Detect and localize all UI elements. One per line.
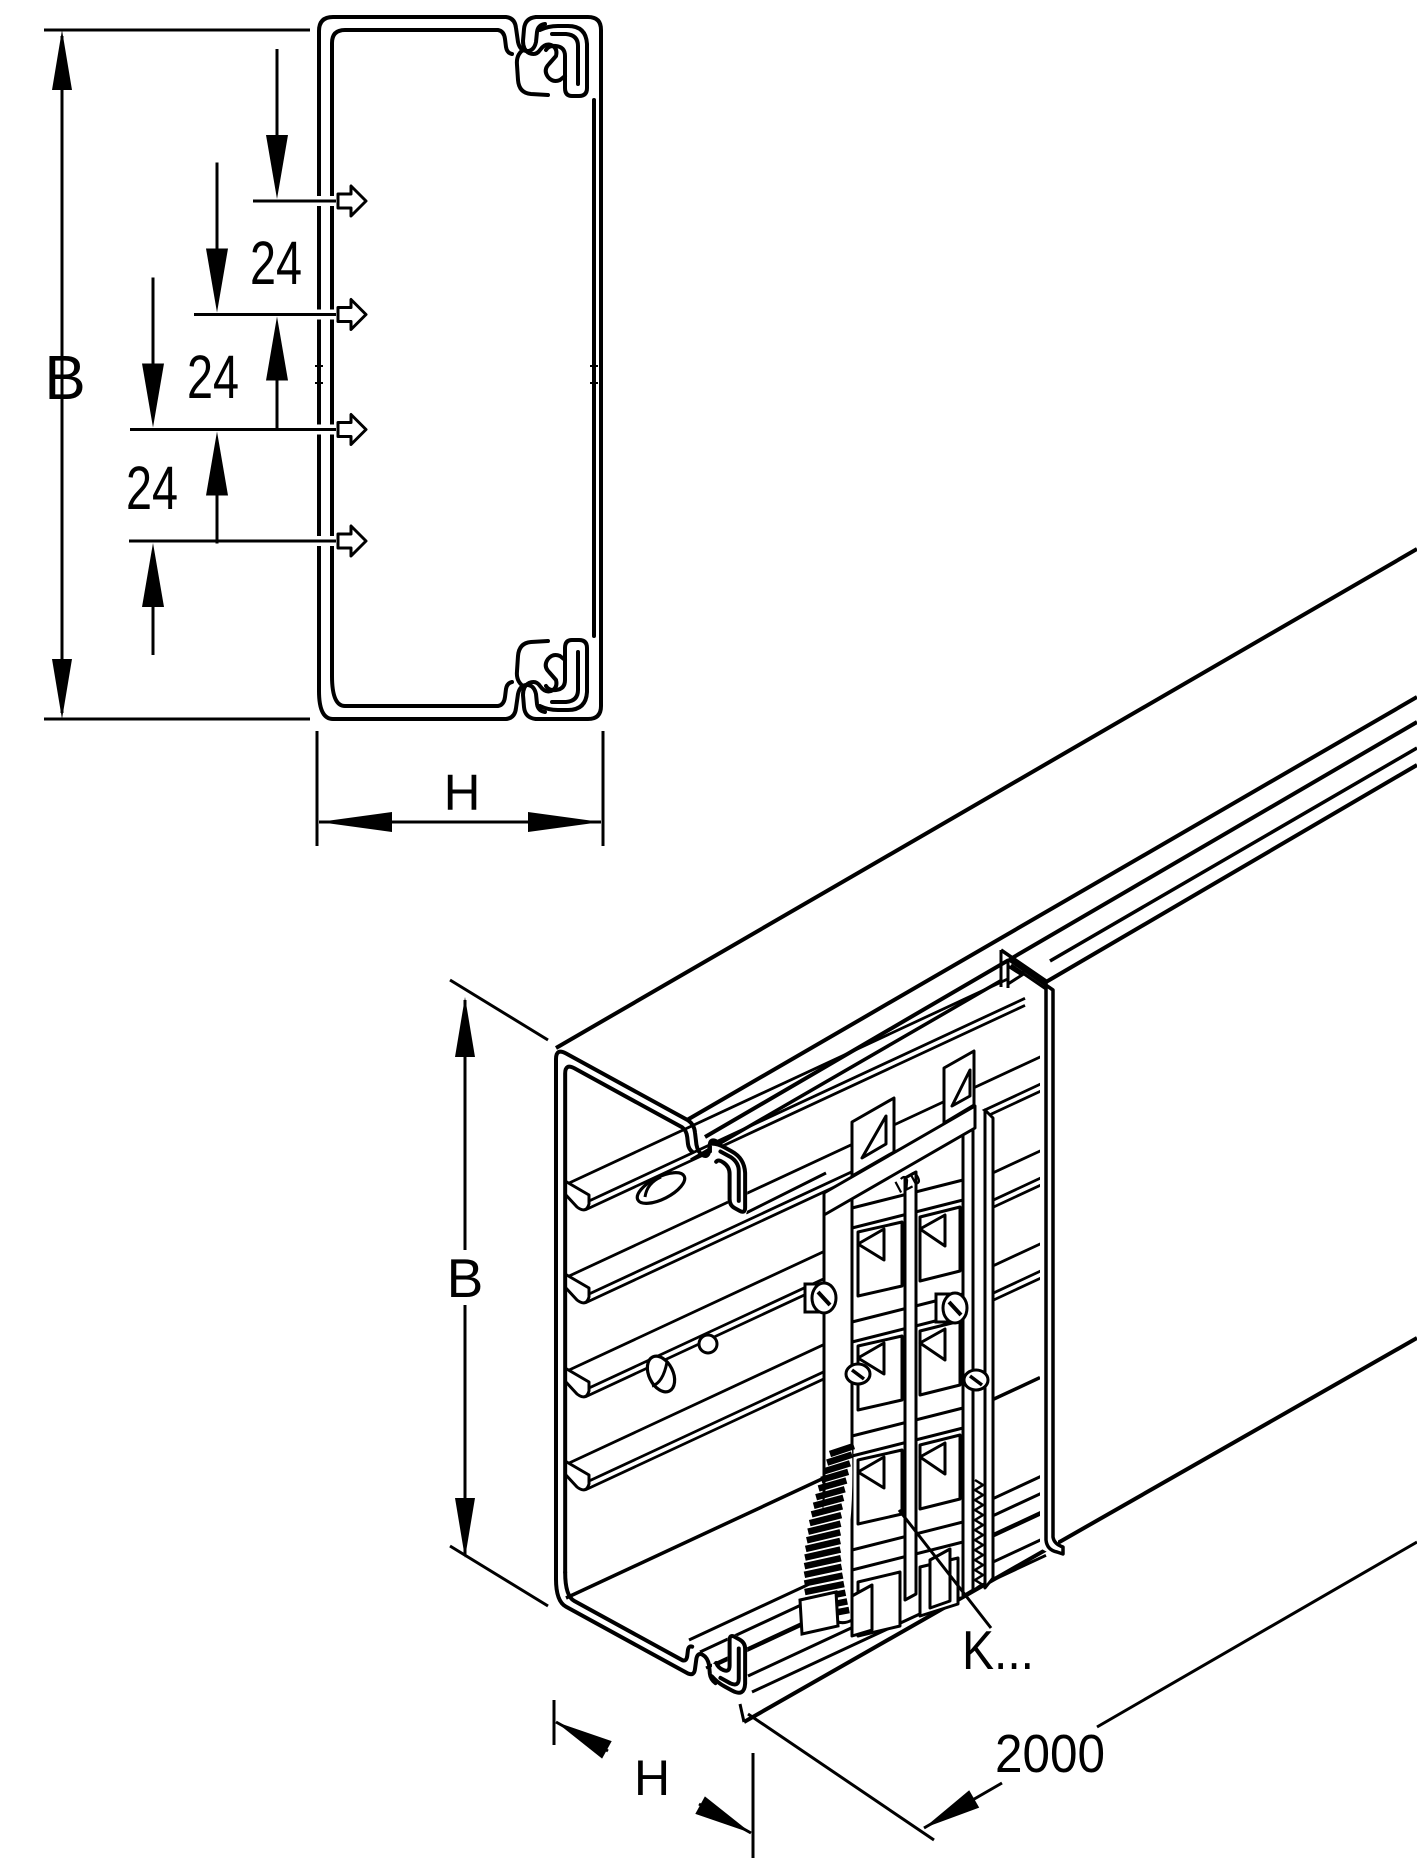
svg-text:24: 24 bbox=[250, 229, 302, 297]
svg-text:H: H bbox=[634, 1750, 670, 1806]
svg-text:H: H bbox=[444, 764, 481, 821]
svg-text:B: B bbox=[44, 344, 85, 413]
svg-text:K...: K... bbox=[962, 1619, 1034, 1681]
svg-text:24: 24 bbox=[126, 454, 178, 522]
svg-text:B: B bbox=[447, 1247, 484, 1309]
svg-text:2000: 2000 bbox=[995, 1724, 1105, 1784]
svg-text:24: 24 bbox=[187, 343, 239, 411]
